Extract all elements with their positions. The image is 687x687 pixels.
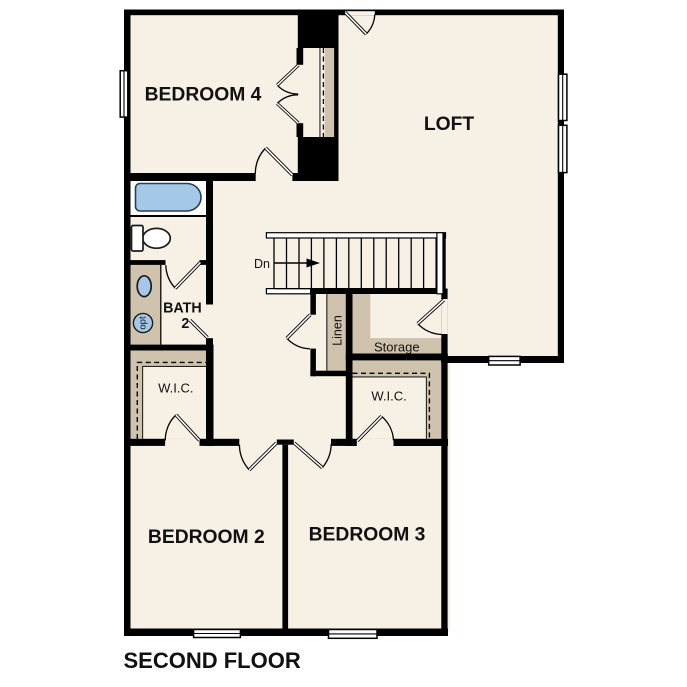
svg-text:LOFT: LOFT <box>424 114 475 135</box>
svg-text:BEDROOM 2: BEDROOM 2 <box>148 527 265 548</box>
svg-text:BEDROOM 4: BEDROOM 4 <box>145 85 262 106</box>
svg-text:Dn: Dn <box>254 257 270 271</box>
svg-text:opt: opt <box>138 316 149 330</box>
svg-text:BATH: BATH <box>163 300 202 316</box>
svg-text:2: 2 <box>181 316 189 332</box>
svg-text:W.I.C.: W.I.C. <box>371 389 406 404</box>
svg-text:SECOND FLOOR: SECOND FLOOR <box>124 648 301 673</box>
svg-text:Linen: Linen <box>331 315 345 346</box>
svg-text:BEDROOM 3: BEDROOM 3 <box>309 525 426 546</box>
svg-text:W.I.C.: W.I.C. <box>158 381 193 396</box>
svg-text:Storage: Storage <box>374 340 420 355</box>
